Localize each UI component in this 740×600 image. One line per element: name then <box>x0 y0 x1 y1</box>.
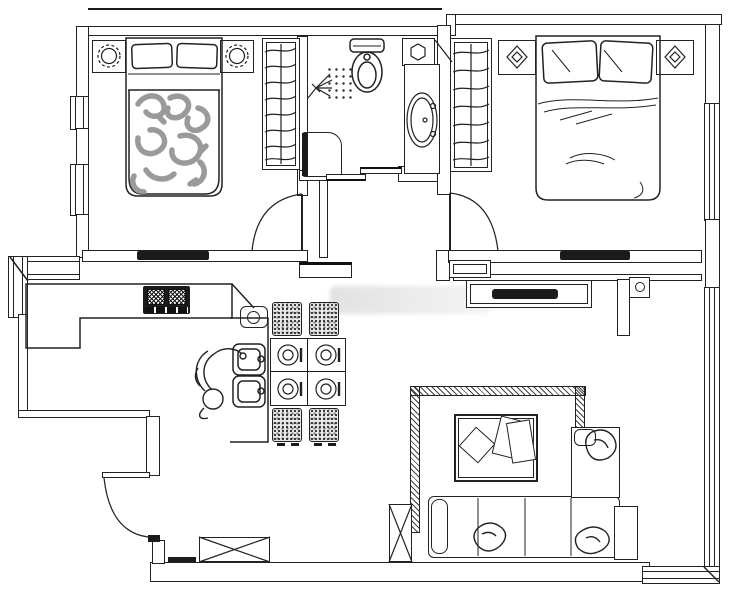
sofa-cushion-dividers <box>478 498 571 556</box>
floor-plan-canvas <box>0 0 740 600</box>
hanger-icons-left <box>265 44 296 164</box>
shower-head-icon <box>308 74 332 98</box>
annotations-layer <box>0 0 740 600</box>
shoe-cabinet-x-icon <box>199 537 270 562</box>
pillow <box>177 43 218 68</box>
toilet-icon <box>350 39 384 92</box>
sink-counter-column <box>230 318 268 442</box>
pillow <box>542 41 598 84</box>
hanger-icons-right <box>453 44 489 166</box>
vanity-basin-icon <box>407 40 452 147</box>
corner-window-diagonal-br <box>704 567 719 582</box>
throw-pillow-squiggles <box>474 430 616 554</box>
counter-corner-diagonal <box>232 284 254 308</box>
bedroom-left-door <box>252 194 302 251</box>
place-settings <box>278 345 339 399</box>
duvet-pattern <box>133 96 208 192</box>
bedroom-right-door <box>450 193 498 251</box>
bed-right <box>536 36 660 200</box>
entry-door <box>104 478 148 537</box>
side-table-x-icon <box>389 504 412 562</box>
corner-window-diagonal <box>10 257 28 281</box>
pillow <box>132 43 173 68</box>
pillow <box>599 41 653 84</box>
kitchen-counter <box>26 284 232 348</box>
